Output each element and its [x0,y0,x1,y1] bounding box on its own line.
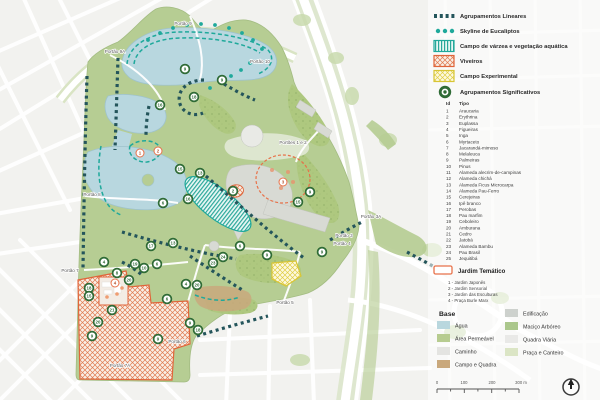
svg-text:Myrtaceto: Myrtaceto [459,139,480,144]
svg-text:7: 7 [446,145,449,150]
svg-text:18: 18 [192,95,197,100]
significant-group-marker: 2 [229,187,238,196]
svg-text:21: 21 [446,232,452,237]
svg-text:18: 18 [196,328,201,333]
svg-text:Inga: Inga [459,133,468,138]
thematic-garden-site-marker: 3 [279,178,287,186]
significant-groups-icon [440,87,450,97]
significant-group-marker: 9 [318,248,327,257]
svg-text:12: 12 [446,176,452,181]
nurseries-icon [434,56,454,67]
svg-text:5: 5 [446,133,449,138]
svg-text:Figueiras: Figueiras [459,127,479,132]
legend-type-row: 21Cedro [446,232,472,237]
significant-group-marker: 16 [156,101,165,110]
svg-text:13: 13 [171,241,176,246]
legend-item-label: Campo de várzea e vegetação aquática [460,44,568,50]
svg-text:16: 16 [186,197,191,202]
significant-group-marker: 20 [193,281,202,290]
map-canvas: Portão 9Portão 10Portão 9APortão 8Portão… [0,0,600,400]
thematic-garden-item: 4 - Praça Burle Marx [448,298,489,303]
significant-group-marker: 9 [154,335,163,344]
significant-group-marker: 9 [88,332,97,341]
svg-text:Jatobá: Jatobá [459,238,473,243]
significant-group-marker: 18 [194,326,203,335]
thematic-garden-site-marker: 1 [136,149,144,157]
legend-type-row: 25Jequitibá [446,256,478,261]
svg-text:9: 9 [446,158,449,163]
svg-text:Pau marfim: Pau marfim [459,213,483,218]
gate-label: Portão 7A [110,363,131,368]
svg-text:Araucaria: Araucaria [459,109,479,114]
gate-label: Portão 9A [105,49,126,54]
significant-group-marker: 6 [153,260,162,269]
significant-group-marker: 24 [219,253,228,262]
svg-text:16: 16 [446,201,452,206]
thematic-garden-item: 2 - Jardim Sensorial [448,286,487,291]
svg-text:Pau Brasil: Pau Brasil [459,250,480,255]
svg-text:1: 1 [446,109,449,114]
svg-text:13: 13 [446,182,452,187]
legend-type-row: 22Jatobá [446,238,473,243]
gate-label: Portão 6 [168,339,186,344]
svg-text:Cerejeiras: Cerejeiras [459,195,481,200]
square-swatch [505,348,518,356]
svg-text:20: 20 [127,278,132,283]
legend-item-label: Viveiros [460,59,482,65]
svg-text:4: 4 [446,127,449,132]
base-item-label: Água [455,323,468,330]
base-item-label: Edificação [523,312,548,318]
svg-text:15: 15 [446,195,452,200]
significant-group-marker: 16 [184,195,193,204]
road-swatch [505,335,518,343]
gate-label: Portão 9 [174,21,192,26]
svg-text:Pinus: Pinus [459,164,471,169]
svg-text:15: 15 [87,294,92,299]
varzea-field-icon [434,41,454,52]
legend-type-row: 17Perobas [446,207,477,212]
legend-type-row: 10Pinus [446,164,471,169]
legend-type-row: 24Pau Brasil [446,250,480,255]
significant-group-marker: 17 [147,242,156,251]
svg-text:20: 20 [446,225,452,230]
plaza-area [225,133,310,160]
svg-text:Alameda Pau-Ferro: Alameda Pau-Ferro [459,188,500,193]
significant-group-marker: 20 [94,318,103,327]
significant-group-marker: 6 [236,242,245,251]
significant-group-marker: 10 [140,264,149,273]
thematic-garden-site-marker: 2 [154,147,162,155]
park-map-figure: Portão 9Portão 10Portão 9APortão 8Portão… [0,0,600,400]
significant-group-marker: 15 [85,292,94,301]
significant-group-marker: 4 [182,280,191,289]
significant-group-marker: 9 [181,65,190,74]
svg-text:17: 17 [446,207,452,212]
svg-text:22: 22 [446,238,452,243]
svg-text:21: 21 [110,308,115,313]
significant-group-marker: 9 [263,251,272,260]
svg-text:20: 20 [195,283,200,288]
svg-text:Alameda alecrim-de-campinas: Alameda alecrim-de-campinas [459,170,522,175]
svg-text:17: 17 [149,244,154,249]
svg-text:Cedro: Cedro [459,232,472,237]
svg-text:24: 24 [221,255,226,260]
thematic-garden-item: 1 - Jardim Japonês [448,280,486,285]
gate-label: Portão 3A [361,214,382,219]
svg-text:19: 19 [133,262,138,267]
svg-text:11: 11 [446,170,451,175]
building-swatch [505,309,518,317]
significant-group-marker: 6 [159,199,168,208]
svg-text:Alameda Ficus Microcarpa: Alameda Ficus Microcarpa [459,182,514,187]
svg-text:Ceboleiro: Ceboleiro [459,219,479,224]
legend-item-label: Agrupamentos Significativos [460,90,540,96]
eucalyptus-skyline-icon [436,29,454,33]
water-swatch [437,321,450,329]
significant-group-marker: 9 [218,76,227,85]
gate-label: Portão 5 [276,300,294,305]
significant-group-marker: 6 [163,295,172,304]
svg-text:8: 8 [446,152,449,157]
svg-text:Jequitibá: Jequitibá [459,256,478,261]
scale-tick-label: 200 [489,380,497,385]
svg-text:Alameda chichá: Alameda chichá [459,176,492,181]
svg-text:25: 25 [446,256,452,261]
svg-text:3: 3 [446,121,449,126]
svg-text:Erythrina: Erythrina [459,115,478,120]
lake-island [142,174,154,186]
significant-group-marker: 15 [176,165,185,174]
legend-item-label: Skyline de Eucaliptos [460,29,520,35]
svg-text:24: 24 [446,250,452,255]
svg-text:Euplassa: Euplassa [459,121,478,126]
oca-building [241,125,263,147]
gate-label: Portão 3 [335,233,353,238]
gate-label: Portão 4 [333,241,351,246]
path-swatch [437,347,450,355]
significant-group-marker: 13 [169,239,178,248]
types-header-tipo: Tipo [459,101,469,107]
scale-tick-label: 300 m [515,380,527,385]
experimental-field-icon [434,71,454,82]
significant-group-marker: 15 [294,198,303,207]
svg-text:15: 15 [178,167,183,172]
svg-text:18: 18 [87,286,92,291]
tree-mass-swatch [505,322,518,330]
svg-text:Jacarandá-mimoso: Jacarandá-mimoso [459,145,499,150]
svg-text:23: 23 [446,244,452,249]
svg-text:19: 19 [446,219,452,224]
base-item-label: Praça e Canteiro [523,351,563,357]
svg-text:10: 10 [142,266,147,271]
permeable-area-swatch [437,334,450,342]
north-arrow-icon [563,379,579,396]
svg-text:13: 13 [198,171,203,176]
svg-text:Amburana: Amburana [459,225,481,230]
svg-text:2: 2 [446,115,449,120]
significant-group-marker: 23 [209,259,218,268]
gate-label: Portão 8 [83,192,101,197]
base-section-title: Base [439,311,455,318]
significant-group-marker: 4 [100,258,109,267]
svg-text:16: 16 [158,103,163,108]
significant-group-marker: 20 [125,276,134,285]
types-header-id: Id [446,101,450,107]
significant-group-marker: 19 [131,260,140,269]
thematic-garden-item: 3 - Jardim das Esculturas [448,292,498,297]
legend-item-label: Agrupamentos Lineares [460,14,526,20]
significant-group-marker: 21 [108,306,117,315]
svg-text:15: 15 [296,200,301,205]
field-court-swatch [437,360,450,368]
legend-item-label: Campo Experimental [460,74,518,80]
svg-text:18: 18 [446,213,452,218]
base-item-label: Caminho [455,350,477,356]
thematic-garden-icon [434,266,452,274]
svg-text:10: 10 [446,164,452,169]
significant-group-marker: 18 [190,93,199,102]
legend-type-row: 19Ceboleiro [446,219,479,224]
planetarium-building [209,241,219,251]
thematic-garden-label: Jardim Temático [458,269,506,275]
svg-text:Ipê branco: Ipê branco [459,201,481,206]
svg-text:Melaleuca: Melaleuca [459,152,480,157]
svg-text:Alameda Bambu: Alameda Bambu [459,244,493,249]
svg-text:20: 20 [96,320,101,325]
base-item-label: Maciço Arbóreo [523,325,560,331]
significant-group-marker: 9 [306,188,315,197]
svg-text:14: 14 [446,188,452,193]
base-item-label: Área Permeável [455,336,494,343]
base-item-label: Campo e Quadra [455,363,496,369]
gate-label: Portão 10 [250,59,270,64]
gate-label: Portão 7 [61,268,79,273]
svg-text:23: 23 [211,261,216,266]
svg-text:Perobas: Perobas [459,207,477,212]
scale-tick-label: 100 [461,380,469,385]
significant-group-marker: 8 [113,269,122,278]
base-item-label: Quadra Viária [523,338,556,344]
significant-group-marker: 9 [186,319,195,328]
gate-label: Portões 1 e 2 [279,140,307,145]
svg-text:Palmeiras: Palmeiras [459,158,480,163]
significant-group-marker: 13 [196,169,205,178]
svg-text:6: 6 [446,139,449,144]
thematic-garden-site-marker: 4 [111,279,119,287]
